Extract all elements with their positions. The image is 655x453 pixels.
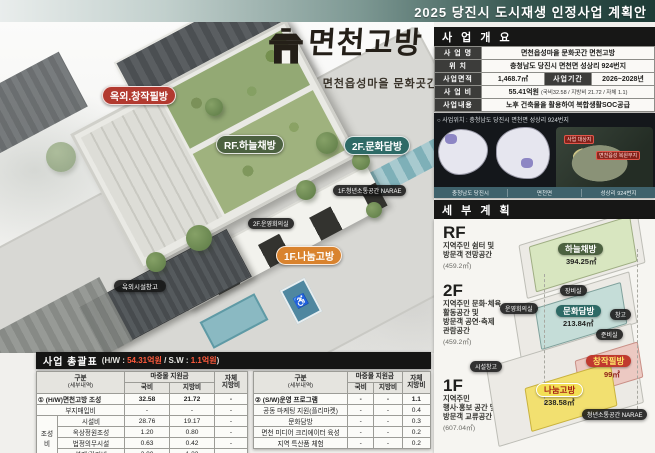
tree (296, 180, 316, 200)
sw-budget-table: 구분 (세부내역) 마중물 지원금 자체 지방비 국비 지방비 ② (S/W)운… (253, 371, 431, 449)
table-row: ② (S/W)운영 프로그램 - - 1.1 (254, 394, 431, 405)
floor-code: RF (443, 224, 521, 241)
tree (146, 252, 166, 272)
room-sky-area: 394.25㎡ (566, 256, 596, 267)
overview-label: 사업기간 (545, 73, 592, 86)
table-row: 설계/감리비 2.00 1.33 - (37, 449, 248, 453)
tree (205, 98, 223, 116)
tree (316, 132, 338, 154)
room-culture-badge: 문화담방 (556, 305, 601, 317)
col-header-sub: (세부내역) (255, 383, 346, 389)
floor-line: 관람공간 (443, 326, 521, 335)
overview-value: 55.41억원 (국비32.58 / 지방비 21.72 / 자체 1.1) (482, 86, 655, 99)
section-overview-title: 사 업 개 요 (434, 29, 513, 45)
room-art-area: 99㎡ (604, 369, 620, 380)
map1-label: 충청남도 당진시 (434, 189, 508, 197)
tree (366, 202, 382, 218)
subtitle-hw: 54.31억원 (127, 356, 162, 365)
badge-outdoor-art: 옥외.창작필방 (102, 86, 176, 105)
logo-subtitle: 면천읍성마을 문화곳간 (268, 75, 438, 91)
table-row: 옥상정원조성 1.20 0.80 - (37, 427, 248, 438)
page-title: 2025 당진시 도시재생 인정사업 계획안 (414, 2, 655, 21)
col-header: 국비 (125, 383, 170, 394)
township-map (496, 127, 550, 179)
col-header: 구분 (255, 376, 346, 383)
floor-rf-desc: RF 지역주민 쉼터 및 방문객 전망공간 (459.2㎡) (443, 224, 521, 270)
section-detail-bar: 세 부 계 획 (434, 200, 655, 220)
map2-label: 면천면 (508, 189, 582, 197)
budget-subtitle: (H/W : 54.31억원 / S.W : 1.1억원) (102, 355, 219, 366)
badge-2f-culture: 2F.문화담방 (344, 136, 410, 155)
section-overview-bar: 사 업 개 요 (434, 27, 655, 47)
room-sky-badge: 하늘채방 (558, 243, 603, 255)
budget-title: 사업 총괄표 (36, 353, 102, 368)
header-band: 2025 당진시 도시재생 인정사업 계획안 (0, 0, 655, 22)
connector-line (637, 249, 638, 419)
subtitle-sw: 1.1억원 (191, 356, 217, 365)
subtitle-mid: / S.W : (162, 356, 191, 365)
table-row: ① (H/W)면천고방 조성 32.58 21.72 - (37, 394, 248, 405)
overview-label: 위 치 (435, 60, 482, 73)
table-row: 조성비 시설비 28.76 19.17 - (37, 416, 248, 427)
tag-storage: 창고 (610, 309, 631, 320)
room-culture-area: 213.84㎡ (563, 318, 593, 329)
map-captions: 충청남도 당진시 면천면 성상리 924번지 (434, 187, 655, 198)
col-header: 지방비 (404, 383, 429, 390)
site-tag: 사업 대상지 (564, 135, 594, 144)
budget-title-bar: 사업 총괄표 (H/W : 54.31억원 / S.W : 1.1억원) (36, 352, 431, 369)
table-row: 법정의무시설 0.63 0.42 - (37, 438, 248, 449)
floor-code: 2F (443, 282, 521, 299)
budget-summary: 사업 총괄표 (H/W : 54.31억원 / S.W : 1.1억원) 구분 … (36, 352, 431, 369)
site-tag2: 면천읍성 복원부지 (596, 151, 640, 160)
floor-line: 방문객 전망공간 (443, 250, 521, 259)
province-map (438, 129, 488, 175)
col-header: 마중물 지원금 (348, 372, 403, 383)
col-header-sub: (세부내역) (38, 383, 123, 389)
detail-plan-panel: RF 지역주민 쉼터 및 방문객 전망공간 (459.2㎡) 2F 지역주민 문… (434, 219, 655, 453)
satellite-map: 사업 대상지 면천읍성 복원부지 (556, 127, 653, 193)
floor-line: 지역주민 쉼터 및 (443, 241, 521, 250)
overview-label: 사업내용 (435, 99, 482, 112)
subtitle-suffix: ) (217, 356, 220, 365)
table-row: 문화담방 - - 0.3 (254, 416, 431, 427)
hw-budget-table: 구분 (세부내역) 마중물 지원금 자체 지방비 국비 지방비 ① (H/W)면… (36, 371, 248, 453)
plan-poster: 2025 당진시 도시재생 인정사업 계획안 ♿ (0, 0, 655, 453)
room-art-badge: 창작필방 (586, 355, 631, 367)
subtitle-prefix: (H/W : (102, 356, 127, 365)
badge-1f-youth: 1F.청년소통공간 NARAE (333, 185, 406, 196)
tag-meeting: 운영회의실 (500, 303, 538, 314)
tree (186, 225, 212, 251)
gate-icon (268, 28, 304, 73)
col-header: 지방비 (374, 383, 402, 394)
overview-value: 면천읍성마을 문화곳간 면천고방 (482, 47, 655, 60)
floor-line: 방문객 공연·축제 (443, 317, 521, 326)
tag-prep: 준비실 (596, 329, 623, 340)
tag-facility: 시설창고 (470, 361, 502, 372)
badge-outdoor-storage: 옥외시설창고 (114, 280, 166, 292)
col-header: 국비 (348, 383, 374, 394)
badge-rf-sky: RF.하늘채방 (216, 135, 284, 154)
overview-value: 충청남도 당진시 면천면 성상리 924번지 (482, 60, 655, 73)
tag-youth: 청년소통공간 NARAE (582, 409, 647, 420)
badge-2f-meeting: 2F.운영회의실 (248, 218, 294, 229)
floor-2f-desc: 2F 지역주민 문화·체육 활동공간 및 방문객 공연·축제 관람공간 (459… (443, 282, 521, 346)
room-share-area: 238.58㎡ (544, 397, 574, 408)
col-header: 지방비 (170, 383, 215, 394)
floor-area: (459.2㎡) (443, 336, 521, 346)
overview-label: 사 업 명 (435, 47, 482, 60)
overview-label: 사업면적 (435, 73, 482, 86)
section-detail-title: 세 부 계 획 (434, 202, 513, 218)
col-header: 지방비 (216, 383, 246, 390)
tree (46, 142, 76, 172)
table-row: 공동 마케팅 지원(플리마켓) - - 0.4 (254, 405, 431, 416)
badge-1f-share: 1F.나눔고방 (276, 246, 342, 265)
cost-value: 55.41억원 (509, 89, 539, 96)
project-logo: 면천고방 면천읍성마을 문화곳간 (268, 28, 438, 91)
col-header: 마중물 지원금 (125, 372, 215, 383)
cost-detail: (국비32.58 / 지방비 21.72 / 자체 1.1) (541, 90, 627, 96)
overview-label: 사 업 비 (435, 86, 482, 99)
overview-value: 2026~2028년 (592, 73, 655, 86)
overview-value: 1,468.7㎡ (482, 73, 545, 86)
floor-area: (459.2㎡) (443, 260, 521, 270)
tag-equip: 장비실 (560, 285, 587, 296)
logo-title: 면천고방 (307, 28, 424, 60)
table-row: 부지매입비 - - - (37, 405, 248, 416)
map3-label: 성상리 924번지 (582, 189, 655, 197)
location-maps: ○ 사업위치 : 충청남도 당진시 면천면 성상리 924번지 사업 대상지 면… (434, 113, 655, 198)
overview-table: 사 업 명 면천읍성마을 문화곳간 면천고방 위 치 충청남도 당진시 면천면 … (434, 46, 655, 112)
table-row: 면천 미디어 크리에이터 육성 - - 0.2 (254, 427, 431, 438)
table-row: 지역 특산품 체험 - - 0.2 (254, 438, 431, 449)
overview-value: 노후 건축물을 활용하여 복합생활SOC공급 (482, 99, 655, 112)
room-share-badge: 나눔고방 (536, 383, 583, 397)
col-header: 구분 (38, 376, 123, 383)
